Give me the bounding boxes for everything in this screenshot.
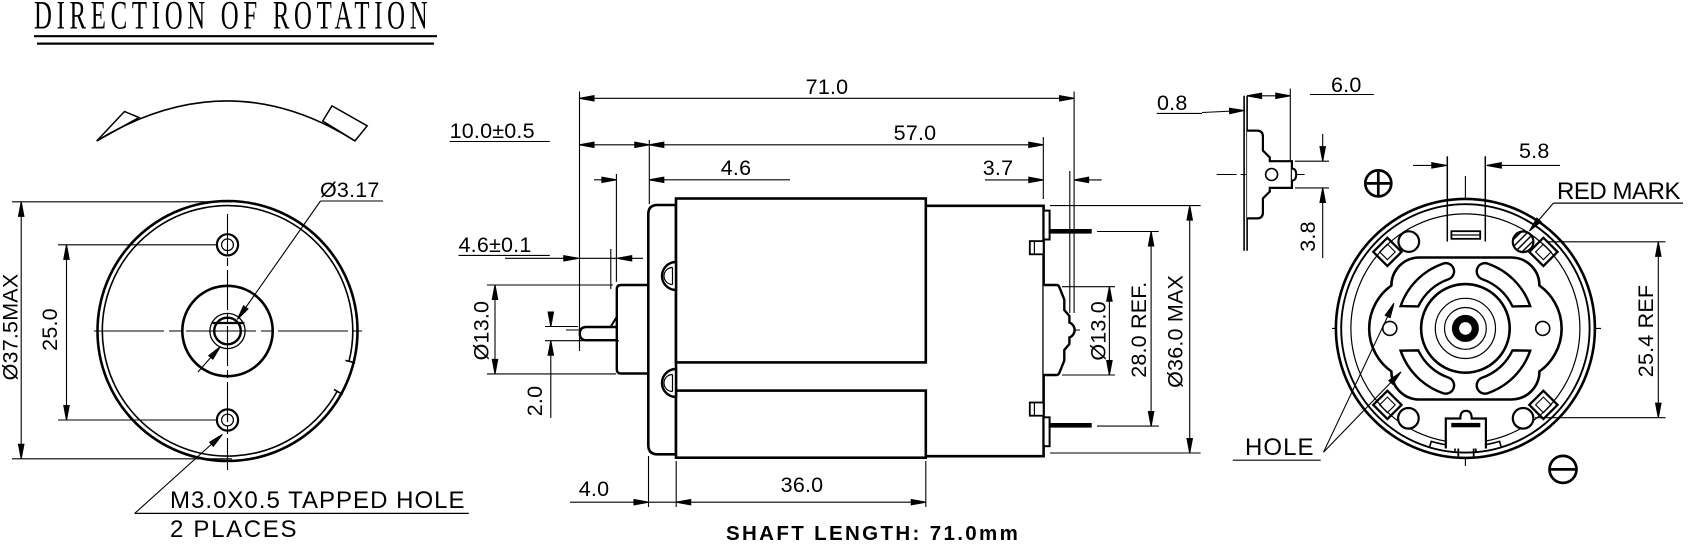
svg-text:2 PLACES: 2 PLACES (170, 516, 297, 543)
svg-text:4.6: 4.6 (721, 156, 752, 180)
svg-text:28.0 REF.: 28.0 REF. (1127, 282, 1151, 378)
svg-text:HOLE: HOLE (1245, 434, 1314, 461)
svg-text:5.8: 5.8 (1519, 139, 1550, 163)
svg-text:Ø3.17: Ø3.17 (320, 178, 380, 202)
svg-text:3.8: 3.8 (1296, 221, 1320, 252)
svg-text:25.4 REF: 25.4 REF (1634, 285, 1658, 377)
svg-text:4.0: 4.0 (579, 477, 610, 501)
svg-text:36.0: 36.0 (781, 473, 824, 497)
svg-text:Ø36.0 MAX: Ø36.0 MAX (1164, 275, 1188, 388)
svg-text:Ø13.0: Ø13.0 (470, 301, 494, 361)
svg-text:25.0: 25.0 (38, 308, 62, 351)
svg-text:57.0: 57.0 (894, 121, 937, 145)
svg-text:RED MARK: RED MARK (1557, 178, 1681, 205)
svg-text:71.0: 71.0 (806, 75, 849, 99)
svg-text:DIRECTION OF ROTATION: DIRECTION OF ROTATION (34, 0, 428, 38)
svg-text:M3.0X0.5 TAPPED HOLE: M3.0X0.5 TAPPED HOLE (170, 487, 465, 514)
svg-text:0.8: 0.8 (1157, 91, 1188, 115)
svg-text:SHAFT LENGTH: 71.0mm: SHAFT LENGTH: 71.0mm (726, 522, 1020, 545)
svg-text:2.0: 2.0 (523, 386, 547, 417)
svg-text:6.0: 6.0 (1331, 73, 1362, 97)
svg-text:Ø37.5MAX: Ø37.5MAX (0, 274, 23, 381)
svg-text:3.7: 3.7 (983, 156, 1014, 180)
svg-text:4.6±0.1: 4.6±0.1 (459, 233, 532, 257)
svg-text:10.0±0.5: 10.0±0.5 (450, 119, 535, 143)
svg-text:Ø13.0: Ø13.0 (1087, 301, 1111, 361)
